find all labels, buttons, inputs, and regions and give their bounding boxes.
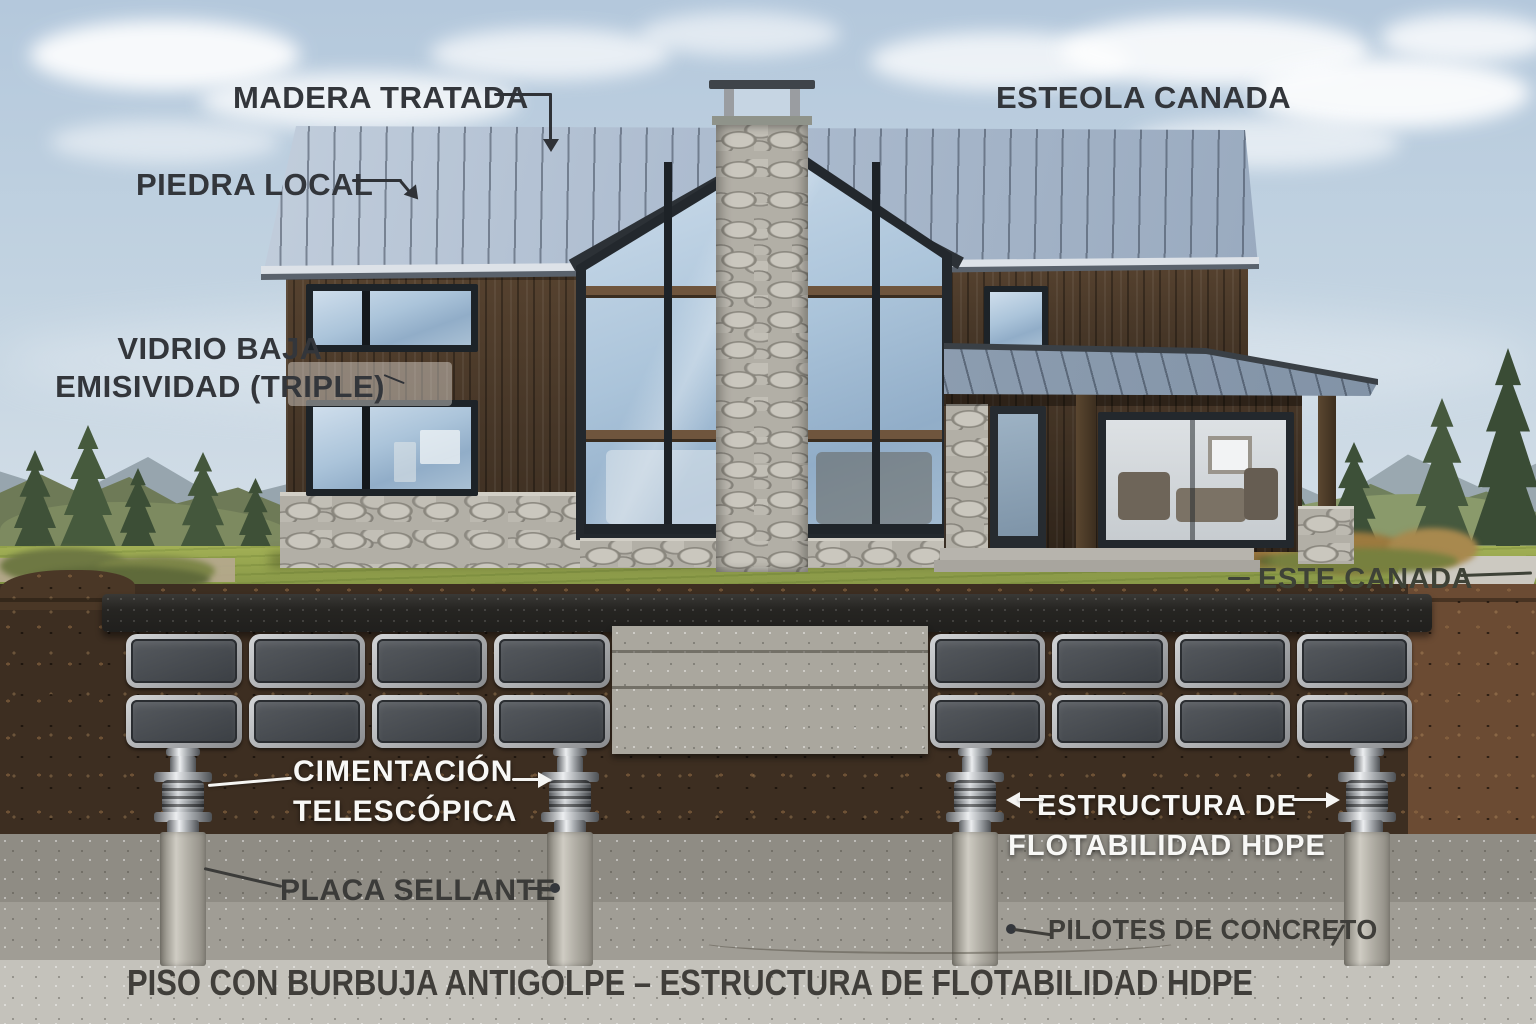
- label-piedra-local: PIEDRA LOCAL: [136, 167, 373, 203]
- porch-stone-pedestal: [1298, 506, 1354, 564]
- cloud: [50, 120, 280, 164]
- pier-ribbed-barrel: [1346, 780, 1388, 814]
- hdpe-float-panel: [372, 695, 488, 749]
- hdpe-float-face: [1057, 639, 1162, 683]
- label-line: FLOTABILIDAD HDPE: [1002, 826, 1332, 866]
- hdpe-float-panel: [126, 634, 242, 688]
- porch-post: [1076, 392, 1096, 560]
- label-cimentacion-telescopica: CIMENTACIÓN TELESCÓPICA: [293, 752, 513, 832]
- label-line: ESTRUCTURA DE: [1002, 786, 1332, 826]
- cloud: [430, 28, 670, 80]
- label-este-canada: ESTE CANADA: [1258, 563, 1473, 596]
- hdpe-float-panel: [249, 695, 365, 749]
- pier-cap-plate: [553, 748, 587, 756]
- label-esteola-canada: ESTEOLA CANADA: [996, 80, 1291, 116]
- hdpe-float-face: [499, 700, 605, 744]
- concrete-beam-center: [612, 626, 928, 754]
- cloud: [640, 12, 840, 56]
- label-placa-sellante: PLACA SELLANTE: [280, 874, 530, 908]
- telescopic-pier: [154, 748, 212, 970]
- label-vidrio-baja-emisividad: VIDRIO BAJA EMISIVIDAD (TRIPLE): [30, 330, 410, 406]
- chimney-cap-plate: [709, 80, 815, 89]
- pier-cap-plate: [1350, 748, 1384, 756]
- hdpe-float-panel: [930, 634, 1045, 688]
- chimney-cap-opening: [734, 89, 790, 116]
- hdpe-float-panel: [249, 634, 365, 688]
- hdpe-float-face: [1302, 639, 1407, 683]
- interior-chair: [1244, 468, 1278, 520]
- leader-dash: [1228, 577, 1250, 580]
- leader-line-white: [1292, 798, 1328, 801]
- leader-arrowhead-white: [538, 772, 552, 788]
- leader-curve: [700, 930, 1180, 954]
- interior-furniture: [1176, 488, 1246, 522]
- hdpe-float-face: [1057, 700, 1162, 744]
- hdpe-float-face: [254, 700, 360, 744]
- left-wing-stone-base: [280, 492, 588, 568]
- interior-furniture: [1118, 472, 1170, 520]
- interior-reflection: [420, 430, 460, 464]
- right-upper-window-glass: [990, 292, 1042, 348]
- label-line: EMISIVIDAD (TRIPLE): [30, 368, 410, 406]
- infographic-canvas: MADERA TRATADA PIEDRA LOCAL ESTEOLA CANA…: [0, 0, 1536, 1024]
- hdpe-float-face: [377, 700, 483, 744]
- leader-line-white: [1018, 798, 1044, 801]
- leader-line: [528, 887, 550, 890]
- leader-line: [352, 179, 402, 182]
- label-line: CIMENTACIÓN: [293, 752, 513, 792]
- window-mullion: [1190, 420, 1195, 540]
- leader-line: [494, 93, 552, 96]
- hdpe-float-face: [1180, 639, 1285, 683]
- concrete-pile: [1344, 832, 1390, 966]
- window-mullion: [664, 162, 672, 532]
- porch-post: [1318, 394, 1336, 512]
- window-mullion: [362, 407, 370, 489]
- porch-roof-shadow: [944, 394, 1302, 406]
- window-mullion: [872, 162, 880, 532]
- concrete-pile: [160, 832, 206, 966]
- pier-ribbed-barrel: [549, 780, 591, 814]
- interior-reflection: [394, 442, 416, 482]
- porch-step: [940, 548, 1254, 560]
- porch-step: [934, 560, 1260, 572]
- chimney-cap-band: [712, 116, 812, 125]
- hdpe-float-group-left: [126, 634, 610, 748]
- pier-cap-plate: [958, 748, 992, 756]
- hdpe-float-face: [935, 639, 1040, 683]
- hdpe-float-panel: [1052, 634, 1167, 688]
- hdpe-float-panel: [494, 634, 610, 688]
- leader-arrowhead: [543, 139, 559, 152]
- hdpe-float-face: [131, 639, 237, 683]
- hdpe-float-panel: [126, 695, 242, 749]
- porch-stone-column: [946, 404, 988, 552]
- hdpe-float-panel: [1175, 695, 1290, 749]
- leader-line: [549, 93, 552, 141]
- hdpe-float-panel: [494, 695, 610, 749]
- chimney-shaft: [716, 125, 808, 572]
- hdpe-float-panel: [1052, 695, 1167, 749]
- pier-ribbed-barrel: [954, 780, 996, 814]
- porch-door-glass: [998, 414, 1038, 536]
- label-line: VIDRIO BAJA: [30, 330, 410, 368]
- hdpe-float-face: [499, 639, 605, 683]
- leader-dot: [550, 883, 560, 893]
- hdpe-float-face: [1302, 700, 1407, 744]
- chimney-cap-post: [790, 89, 800, 116]
- hdpe-float-face: [254, 639, 360, 683]
- hdpe-float-panel: [1297, 695, 1412, 749]
- label-estructura-flotabilidad: ESTRUCTURA DE FLOTABILIDAD HDPE: [1002, 786, 1332, 866]
- label-madera-tratada: MADERA TRATADA: [233, 80, 529, 116]
- pier-cap-plate: [166, 748, 200, 756]
- cloud: [1380, 14, 1536, 62]
- stone-chimney: [712, 80, 812, 572]
- pier-ribbed-barrel: [162, 780, 204, 814]
- label-line: TELESCÓPICA: [293, 792, 513, 832]
- beam-groove: [612, 686, 928, 689]
- cloud: [1250, 58, 1530, 128]
- hdpe-float-face: [1180, 700, 1285, 744]
- hdpe-float-face: [131, 700, 237, 744]
- hdpe-float-panel: [1297, 634, 1412, 688]
- hdpe-float-panel: [930, 695, 1045, 749]
- hdpe-float-panel: [372, 634, 488, 688]
- leader-line-white: [512, 778, 540, 781]
- hdpe-float-face: [377, 639, 483, 683]
- beam-groove: [612, 650, 928, 653]
- hdpe-float-panel: [1175, 634, 1290, 688]
- hdpe-float-group-right: [930, 634, 1412, 748]
- leader-arrowhead-white: [1326, 792, 1340, 808]
- bottom-caption: PISO CON BURBUJA ANTIGOLPE – ESTRUCTURA …: [97, 962, 1284, 1004]
- chimney-cap-post: [724, 89, 734, 116]
- hdpe-float-face: [935, 700, 1040, 744]
